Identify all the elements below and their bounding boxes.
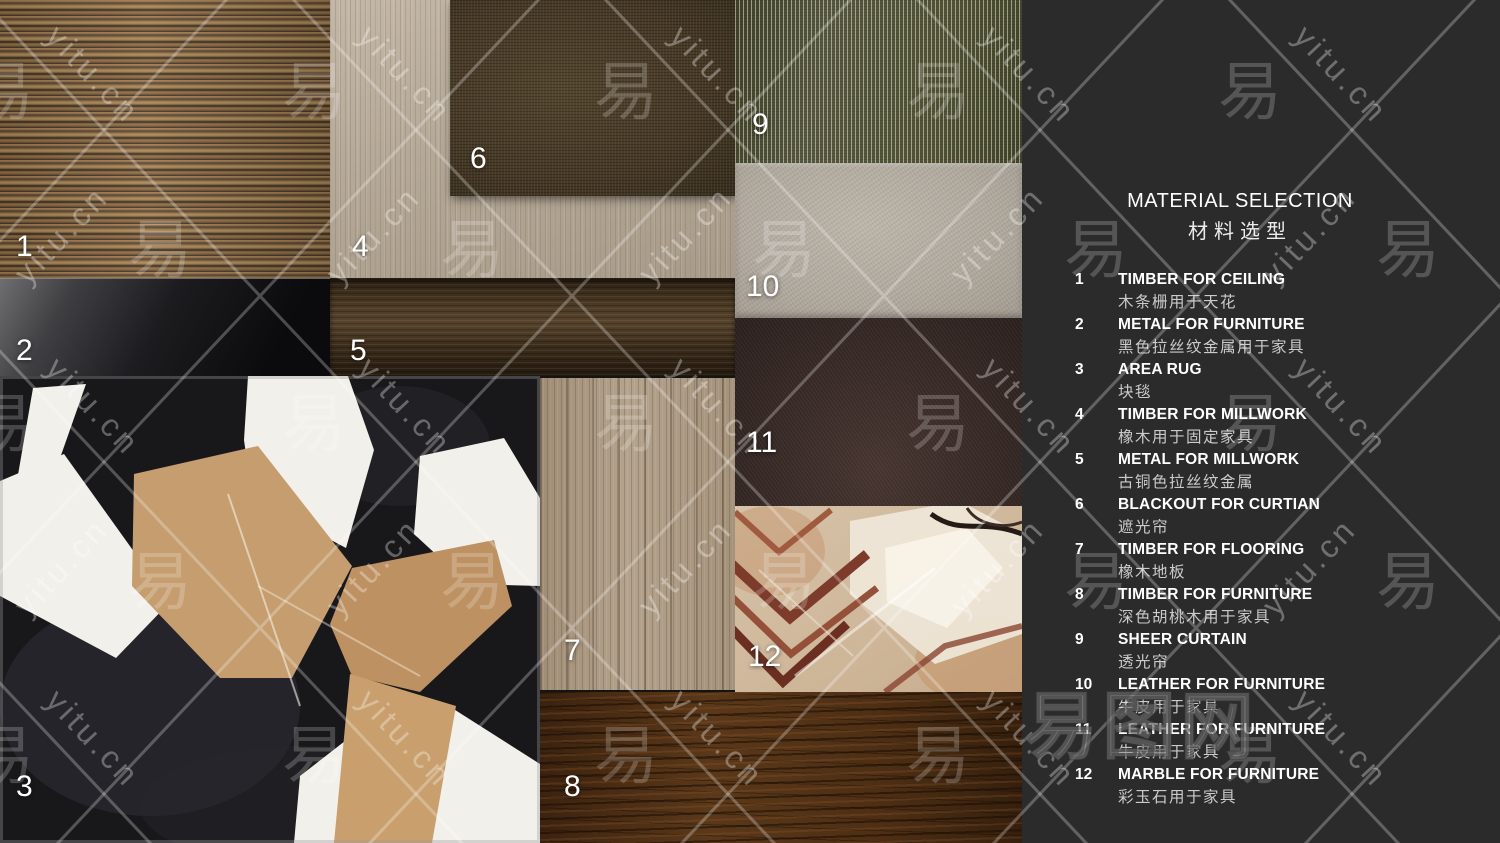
item-number: 10: [1075, 674, 1118, 696]
swatch-blackout-curtain: [450, 0, 735, 196]
item-name-en: TIMBER FOR FLOORING: [1118, 539, 1488, 561]
item-name-zh: 牛皮用于家具: [1118, 696, 1488, 719]
swatch-metal-millwork: [330, 278, 735, 376]
item-name-en: TIMBER FOR CEILING: [1118, 269, 1488, 291]
item-name-zh: 橡木地板: [1118, 561, 1488, 584]
list-item-1: 1 TIMBER FOR CEILING木条栅用于天花: [1075, 269, 1488, 314]
list-item-8: 8 TIMBER FOR FURNITURE深色胡桃木用于家具: [1075, 584, 1488, 629]
item-name-zh: 古铜色拉丝纹金属: [1118, 471, 1488, 494]
item-name-en: MARBLE FOR FURNITURE: [1118, 764, 1488, 786]
item-name-en: SHEER CURTAIN: [1118, 629, 1488, 651]
swatch-timber-furniture: [540, 692, 1022, 843]
item-number: 7: [1075, 539, 1118, 561]
list-item-11: 11 LEATHER FOR FURNITURE牛皮用于家具: [1075, 719, 1488, 764]
item-name-zh: 深色胡桃木用于家具: [1118, 606, 1488, 629]
item-name-zh: 块毯: [1118, 381, 1488, 404]
list-item-5: 5 METAL FOR MILLWORK古铜色拉丝纹金属: [1075, 449, 1488, 494]
item-number: 8: [1075, 584, 1118, 606]
swatch-label-5: 5: [350, 336, 367, 366]
item-name-en: METAL FOR FURNITURE: [1118, 314, 1488, 336]
list-item-2: 2 METAL FOR FURNITURE黑色拉丝纹金属用于家具: [1075, 314, 1488, 359]
swatch-label-8: 8: [564, 772, 581, 802]
item-number: 3: [1075, 359, 1118, 381]
item-number: 11: [1075, 719, 1118, 741]
item-name-en: AREA RUG: [1118, 359, 1488, 381]
swatch-timber-ceiling: [0, 0, 330, 278]
item-name-en: TIMBER FOR MILLWORK: [1118, 404, 1488, 426]
swatch-label-6: 6: [470, 144, 487, 174]
swatch-label-4: 4: [352, 232, 369, 262]
item-number: 4: [1075, 404, 1118, 426]
list-item-7: 7 TIMBER FOR FLOORING橡木地板: [1075, 539, 1488, 584]
list-item-9: 9 SHEER CURTAIN透光帘: [1075, 629, 1488, 674]
list-item-4: 4 TIMBER FOR MILLWORK橡木用于固定家具: [1075, 404, 1488, 449]
swatch-metal-furniture: [0, 278, 330, 377]
panel-subtitle: 材料选型: [1022, 215, 1458, 244]
item-name-zh: 彩玉石用于家具: [1118, 786, 1488, 809]
item-number: 6: [1075, 494, 1118, 516]
list-item-3: 3 AREA RUG块毯: [1075, 359, 1488, 404]
item-name-zh: 木条栅用于天花: [1118, 291, 1488, 314]
swatch-label-3: 3: [16, 772, 33, 802]
swatch-label-9: 9: [752, 110, 769, 140]
swatch-leather-dark: [735, 318, 1022, 506]
item-name-en: LEATHER FOR FURNITURE: [1118, 674, 1488, 696]
swatch-label-2: 2: [16, 336, 33, 366]
swatch-label-1: 1: [16, 232, 33, 262]
item-name-zh: 牛皮用于家具: [1118, 741, 1488, 764]
item-name-zh: 透光帘: [1118, 651, 1488, 674]
list-item-12: 12 MARBLE FOR FURNITURE彩玉石用于家具: [1075, 764, 1488, 809]
item-name-zh: 遮光帘: [1118, 516, 1488, 539]
swatch-sheer-curtain: [735, 0, 1022, 163]
swatch-label-7: 7: [564, 636, 581, 666]
item-number: 2: [1075, 314, 1118, 336]
item-number: 1: [1075, 269, 1118, 291]
item-number: 5: [1075, 449, 1118, 471]
swatch-label-12: 12: [748, 642, 781, 672]
panel-title: MATERIAL SELECTION: [1022, 190, 1458, 213]
swatch-area-rug: [0, 376, 540, 843]
list-item-6: 6 BLACKOUT FOR CURTIAN遮光帘: [1075, 494, 1488, 539]
swatch-label-10: 10: [746, 272, 779, 302]
item-name-zh: 橡木用于固定家具: [1118, 426, 1488, 449]
item-name-en: LEATHER FOR FURNITURE: [1118, 719, 1488, 741]
list-item-10: 10 LEATHER FOR FURNITURE牛皮用于家具: [1075, 674, 1488, 719]
item-number: 9: [1075, 629, 1118, 651]
item-name-en: TIMBER FOR FURNITURE: [1118, 584, 1488, 606]
swatch-label-11: 11: [746, 428, 777, 458]
material-selection-slide: 1 2 3 4 5 6 7 8 9 10 11 12 MATERIAL SELE…: [0, 0, 1500, 843]
item-name-zh: 黑色拉丝纹金属用于家具: [1118, 336, 1488, 359]
material-list: 1 TIMBER FOR CEILING木条栅用于天花 2 METAL FOR …: [1075, 269, 1488, 809]
item-number: 12: [1075, 764, 1118, 786]
item-name-en: BLACKOUT FOR CURTIAN: [1118, 494, 1488, 516]
legend-panel: MATERIAL SELECTION 材料选型 1 TIMBER FOR CEI…: [1022, 0, 1500, 843]
item-name-en: METAL FOR MILLWORK: [1118, 449, 1488, 471]
